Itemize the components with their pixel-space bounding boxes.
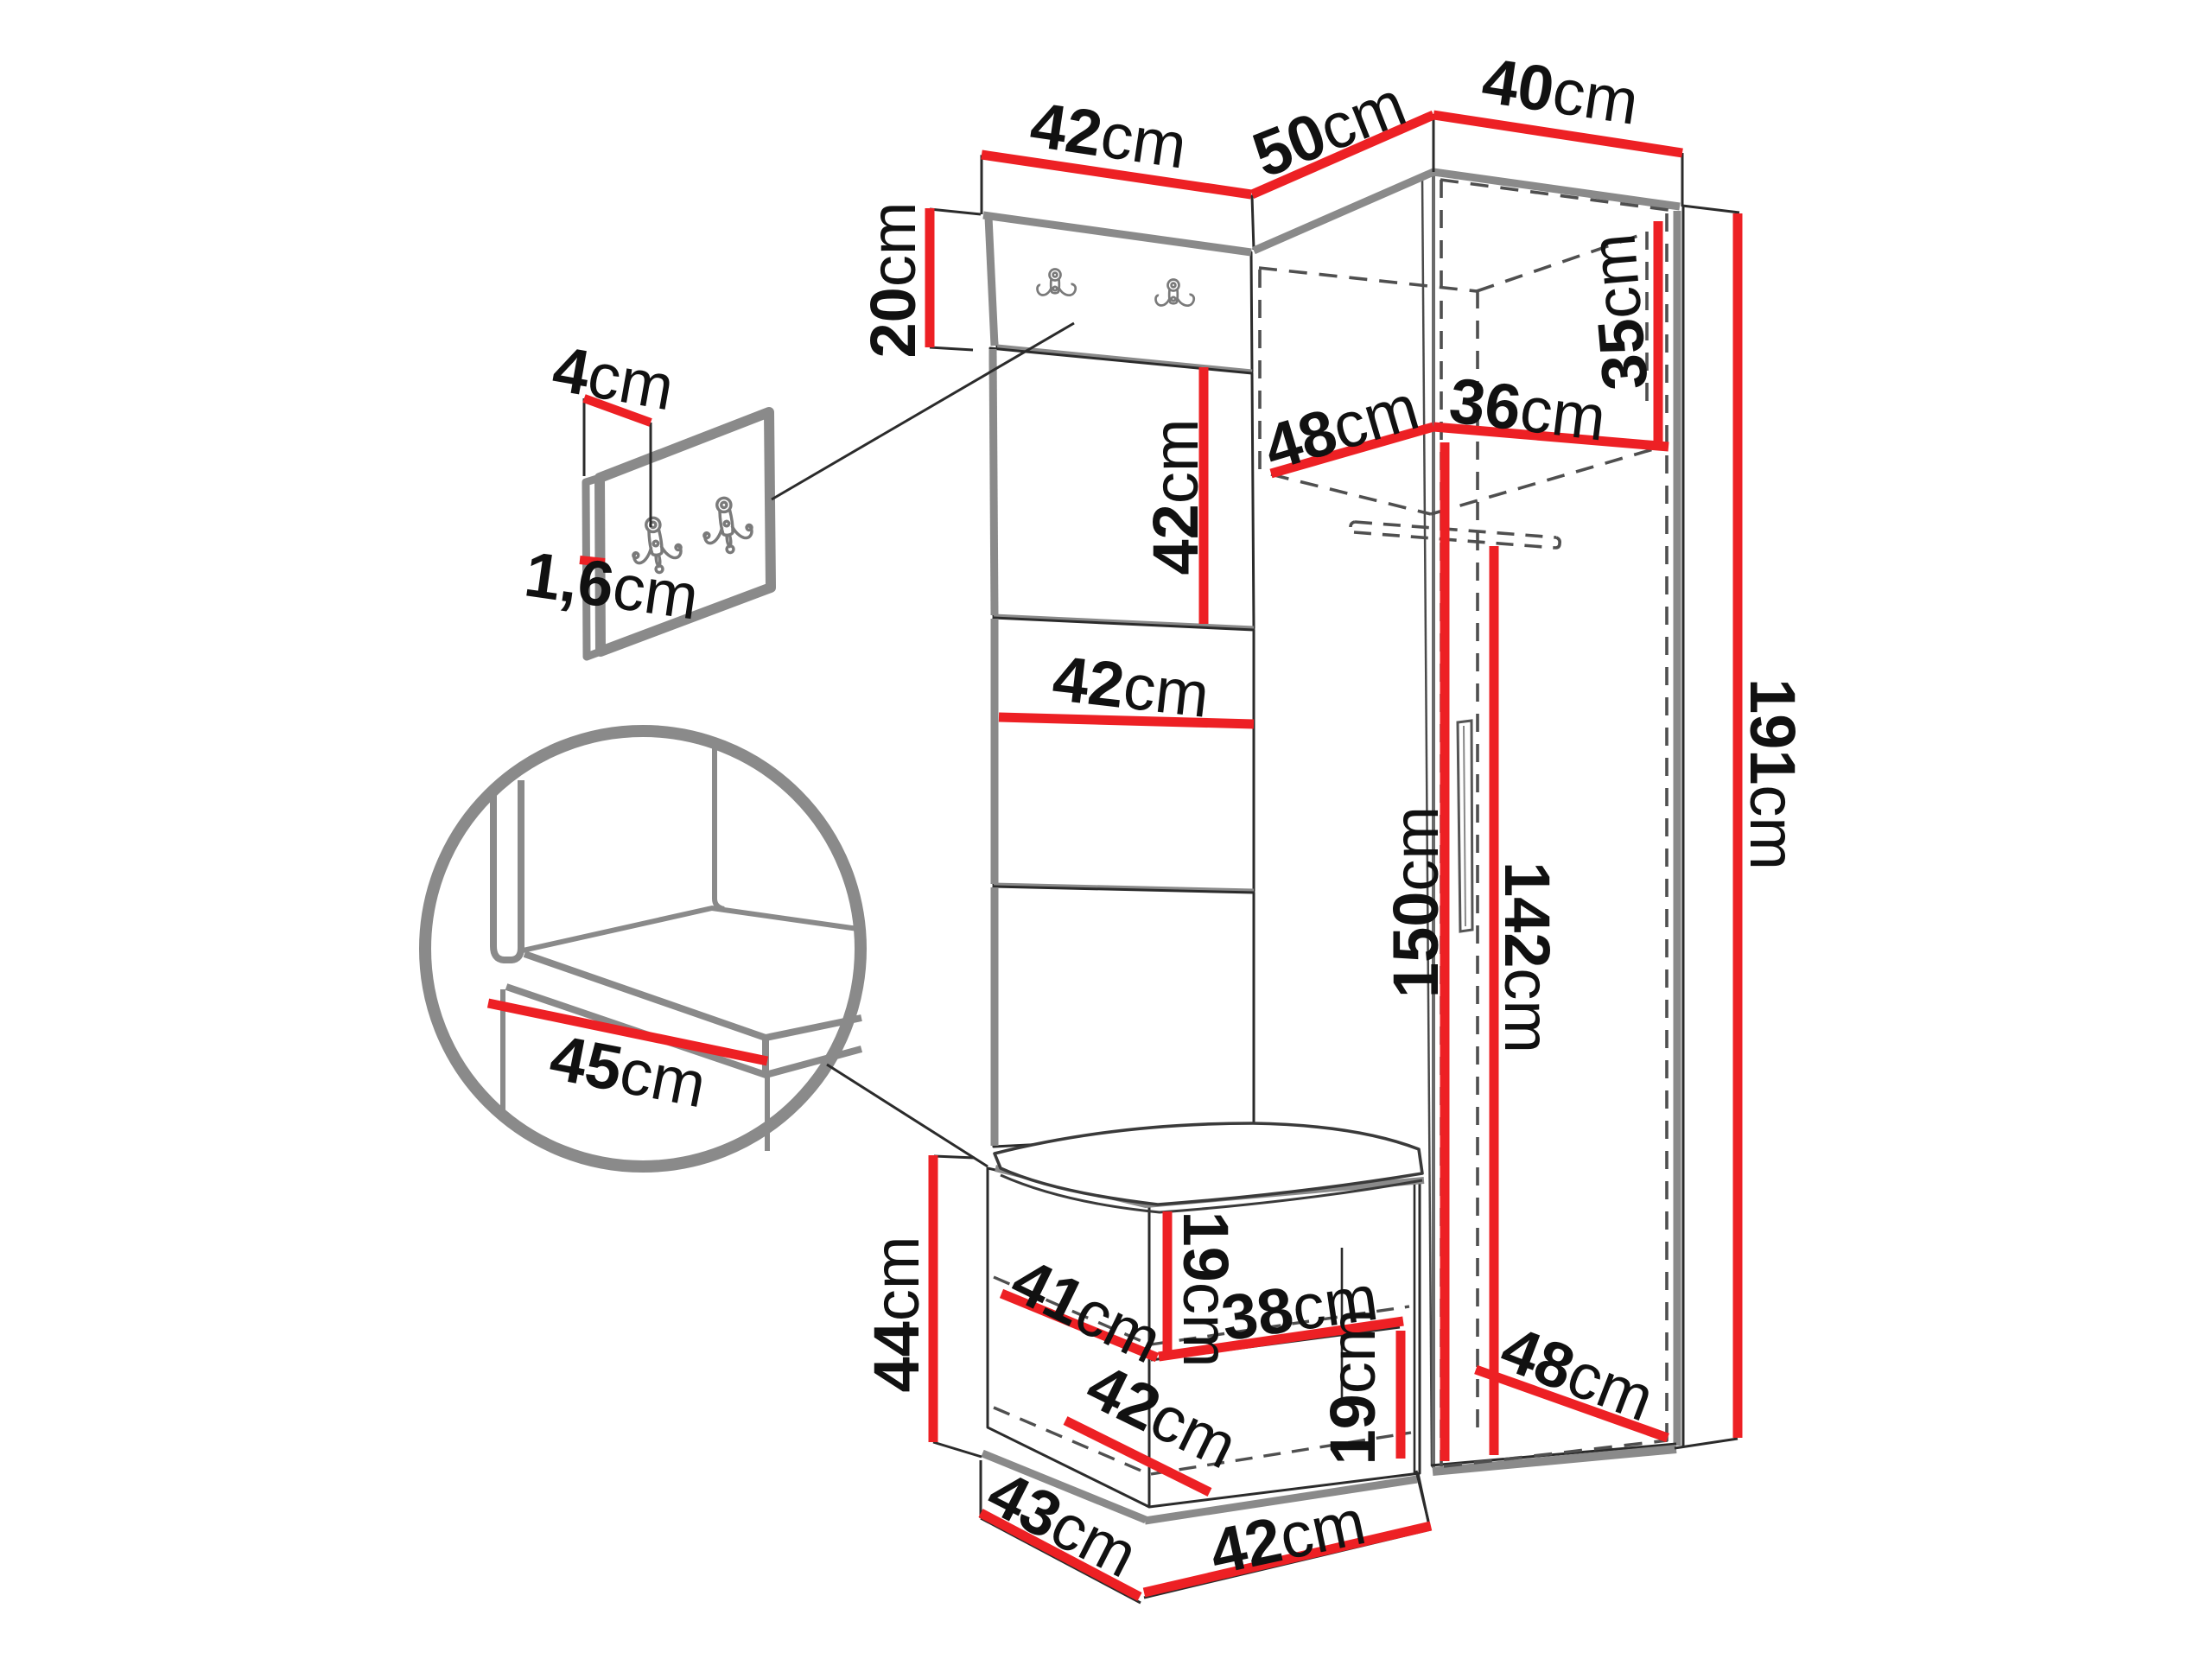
svg-text:150cm: 150cm <box>1380 806 1452 998</box>
svg-text:142cm: 142cm <box>1492 861 1564 1053</box>
svg-text:19cm: 19cm <box>1317 1309 1389 1465</box>
svg-text:44cm: 44cm <box>861 1236 932 1393</box>
svg-text:20cm: 20cm <box>857 202 929 359</box>
svg-text:191cm: 191cm <box>1738 678 1809 870</box>
svg-text:42cm: 42cm <box>1140 419 1211 575</box>
svg-text:35cm: 35cm <box>1576 231 1661 393</box>
